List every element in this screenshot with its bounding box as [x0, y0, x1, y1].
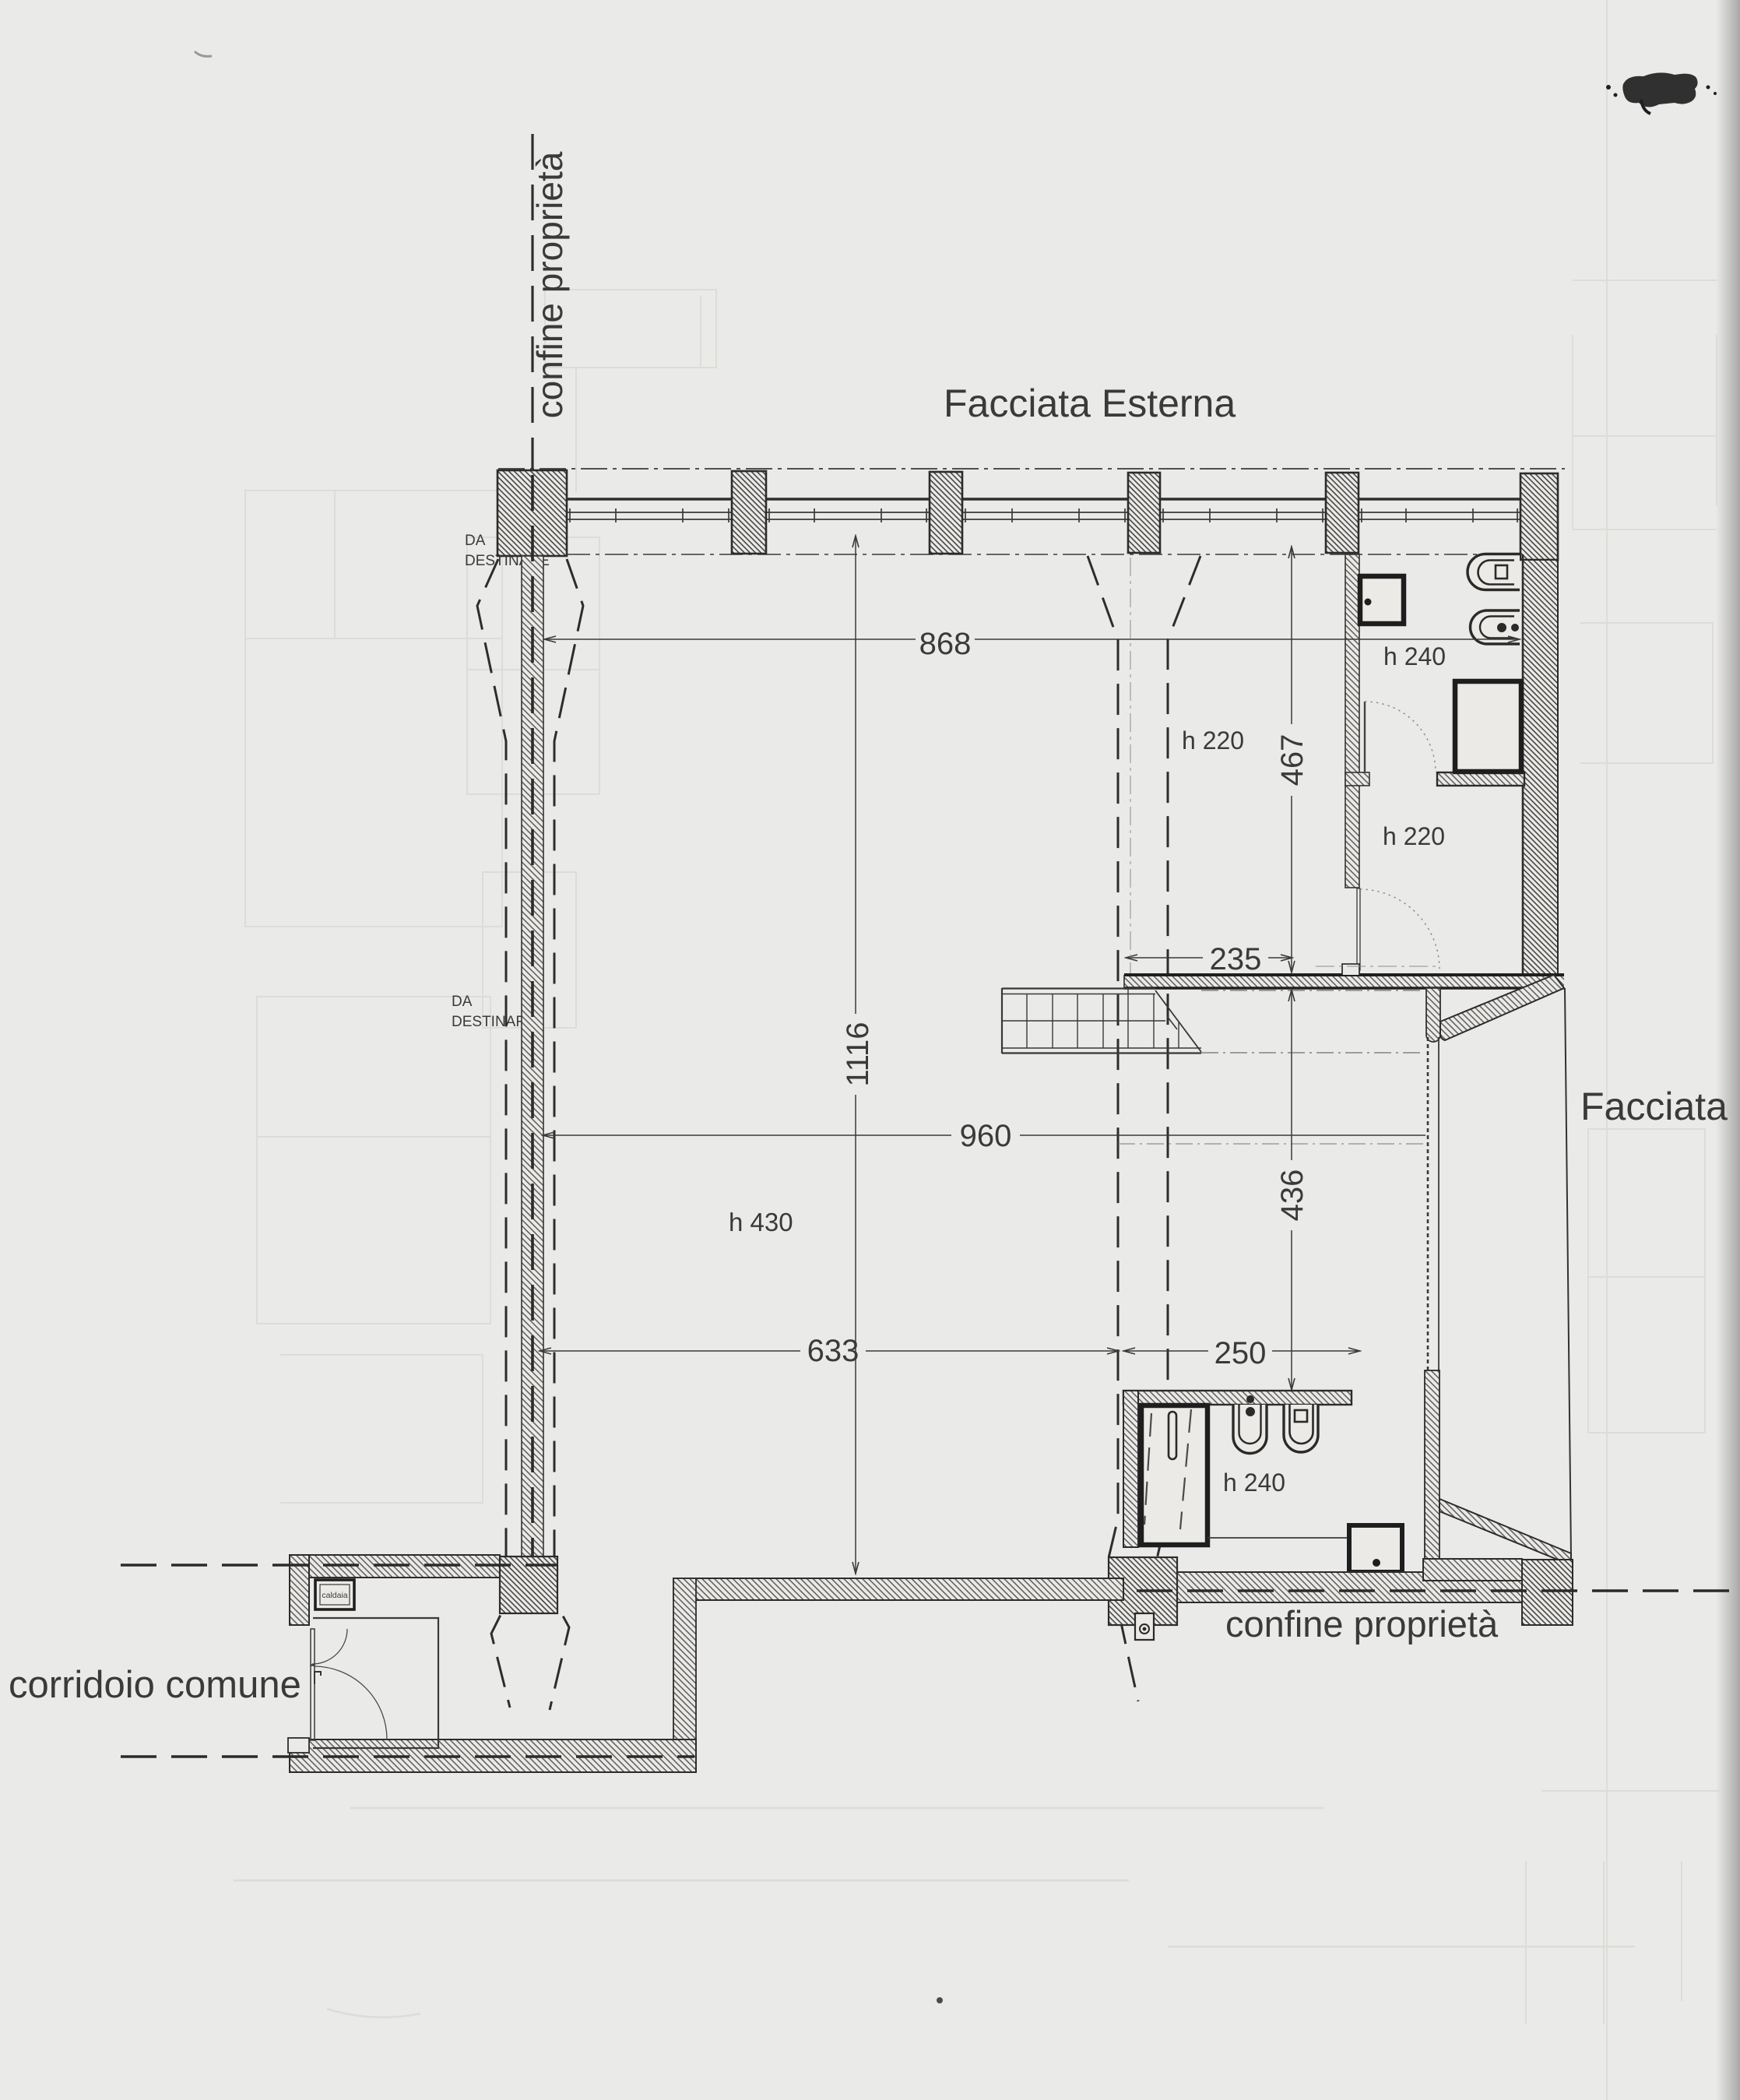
- svg-text:960: 960: [960, 1119, 1012, 1153]
- svg-text:confine proprietà: confine proprietà: [529, 151, 570, 418]
- svg-text:250: 250: [1214, 1336, 1267, 1370]
- svg-text:caldaia: caldaia: [322, 1591, 347, 1600]
- svg-text:confine proprietà: confine proprietà: [1225, 1603, 1499, 1644]
- svg-text:h 240: h 240: [1383, 642, 1446, 670]
- svg-text:1116: 1116: [841, 1022, 875, 1086]
- svg-text:Facciata: Facciata: [1580, 1085, 1728, 1128]
- svg-text:h 430: h 430: [729, 1208, 793, 1236]
- svg-text:DA: DA: [465, 533, 486, 549]
- svg-text:868: 868: [919, 627, 972, 661]
- svg-text:DA: DA: [452, 994, 473, 1010]
- svg-text:436: 436: [1275, 1170, 1309, 1222]
- svg-text:h 220: h 220: [1182, 726, 1244, 755]
- svg-text:h 220: h 220: [1383, 822, 1445, 850]
- svg-text:corridoio comune: corridoio comune: [9, 1664, 301, 1706]
- svg-text:Facciata Esterna: Facciata Esterna: [944, 382, 1236, 425]
- svg-text:633: 633: [807, 1334, 859, 1368]
- svg-text:h 240: h 240: [1223, 1469, 1285, 1497]
- svg-text:467: 467: [1275, 734, 1309, 786]
- svg-text:235: 235: [1210, 942, 1262, 976]
